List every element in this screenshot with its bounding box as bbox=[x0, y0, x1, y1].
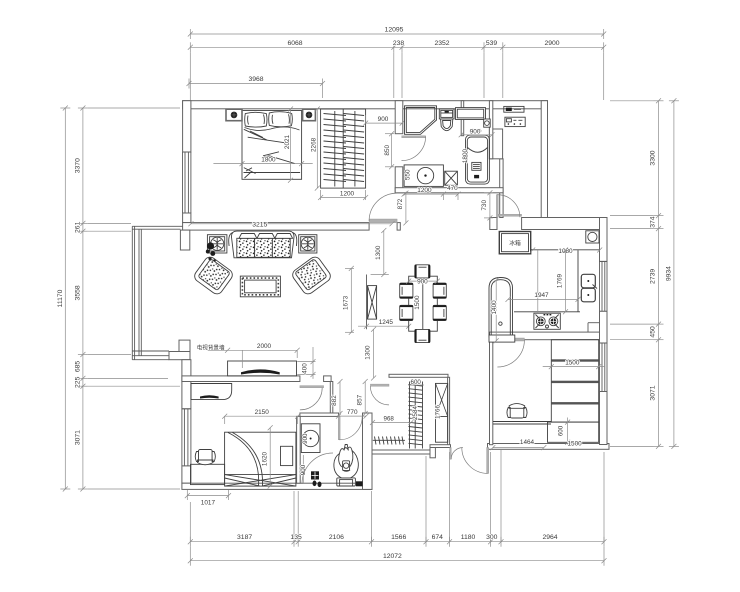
svg-text:1500: 1500 bbox=[414, 295, 421, 310]
svg-text:238: 238 bbox=[393, 40, 405, 47]
svg-text:6068: 6068 bbox=[287, 40, 302, 47]
svg-text:1500: 1500 bbox=[565, 359, 580, 366]
svg-text:1200: 1200 bbox=[340, 191, 355, 198]
svg-text:600: 600 bbox=[411, 379, 422, 386]
svg-text:374: 374 bbox=[650, 216, 657, 228]
svg-text:3215: 3215 bbox=[252, 222, 267, 229]
svg-text:11170: 11170 bbox=[57, 289, 64, 307]
svg-text:1300: 1300 bbox=[365, 345, 372, 360]
svg-text:2900: 2900 bbox=[544, 40, 559, 47]
svg-text:3300: 3300 bbox=[650, 150, 657, 165]
svg-text:135: 135 bbox=[290, 534, 302, 541]
svg-text:857: 857 bbox=[356, 394, 363, 405]
svg-text:400: 400 bbox=[302, 363, 309, 374]
svg-text:1947: 1947 bbox=[534, 292, 549, 299]
svg-text:900: 900 bbox=[417, 279, 428, 286]
svg-text:261: 261 bbox=[75, 221, 82, 233]
svg-text:1245: 1245 bbox=[379, 319, 394, 326]
svg-text:1766: 1766 bbox=[434, 405, 441, 419]
svg-text:968: 968 bbox=[384, 416, 395, 423]
svg-text:3968: 3968 bbox=[248, 76, 263, 83]
svg-text:900: 900 bbox=[302, 433, 309, 444]
svg-text:900: 900 bbox=[470, 128, 481, 135]
svg-text:470: 470 bbox=[447, 185, 458, 192]
svg-text:3558: 3558 bbox=[75, 285, 82, 300]
svg-text:3071: 3071 bbox=[650, 385, 657, 400]
svg-text:1800: 1800 bbox=[462, 148, 469, 163]
svg-text:3071: 3071 bbox=[75, 430, 82, 445]
svg-text:1200: 1200 bbox=[417, 187, 432, 194]
svg-text:2106: 2106 bbox=[329, 534, 344, 541]
svg-text:730: 730 bbox=[481, 200, 488, 211]
svg-text:1673: 1673 bbox=[342, 295, 349, 310]
svg-text:1400: 1400 bbox=[491, 300, 498, 315]
svg-text:539: 539 bbox=[486, 40, 498, 47]
svg-text:2739: 2739 bbox=[650, 269, 657, 284]
svg-text:3187: 3187 bbox=[237, 534, 252, 541]
svg-text:685: 685 bbox=[75, 361, 82, 373]
svg-text:2000: 2000 bbox=[257, 343, 272, 350]
svg-text:850: 850 bbox=[384, 145, 391, 156]
svg-text:3370: 3370 bbox=[75, 158, 82, 173]
svg-text:1620: 1620 bbox=[261, 451, 268, 466]
svg-text:550: 550 bbox=[404, 169, 411, 180]
svg-text:225: 225 bbox=[75, 376, 82, 388]
svg-text:1464: 1464 bbox=[520, 439, 535, 446]
svg-text:882: 882 bbox=[331, 395, 338, 406]
svg-text:770: 770 bbox=[347, 409, 358, 416]
svg-text:2268: 2268 bbox=[311, 137, 318, 152]
svg-text:300: 300 bbox=[486, 534, 498, 541]
svg-text:1300: 1300 bbox=[375, 245, 382, 260]
svg-text:2584: 2584 bbox=[412, 406, 419, 420]
svg-text:1180: 1180 bbox=[461, 534, 476, 541]
svg-text:9934: 9934 bbox=[666, 266, 673, 281]
svg-text:674: 674 bbox=[432, 534, 444, 541]
svg-text:冰箱: 冰箱 bbox=[509, 239, 521, 247]
svg-text:900: 900 bbox=[378, 116, 389, 123]
svg-text:450: 450 bbox=[650, 326, 657, 338]
svg-text:2964: 2964 bbox=[542, 534, 557, 541]
svg-text:1566: 1566 bbox=[391, 534, 406, 541]
svg-text:600: 600 bbox=[558, 425, 565, 436]
svg-text:1500: 1500 bbox=[567, 440, 582, 447]
svg-text:1017: 1017 bbox=[201, 500, 216, 507]
svg-text:1800: 1800 bbox=[261, 157, 276, 164]
svg-text:2021: 2021 bbox=[284, 134, 291, 149]
svg-text:12095: 12095 bbox=[385, 27, 404, 34]
svg-text:12072: 12072 bbox=[383, 553, 402, 560]
svg-text:2150: 2150 bbox=[255, 409, 270, 416]
svg-text:2352: 2352 bbox=[434, 40, 449, 47]
svg-text:1769: 1769 bbox=[556, 273, 563, 288]
svg-text:872: 872 bbox=[397, 198, 404, 209]
